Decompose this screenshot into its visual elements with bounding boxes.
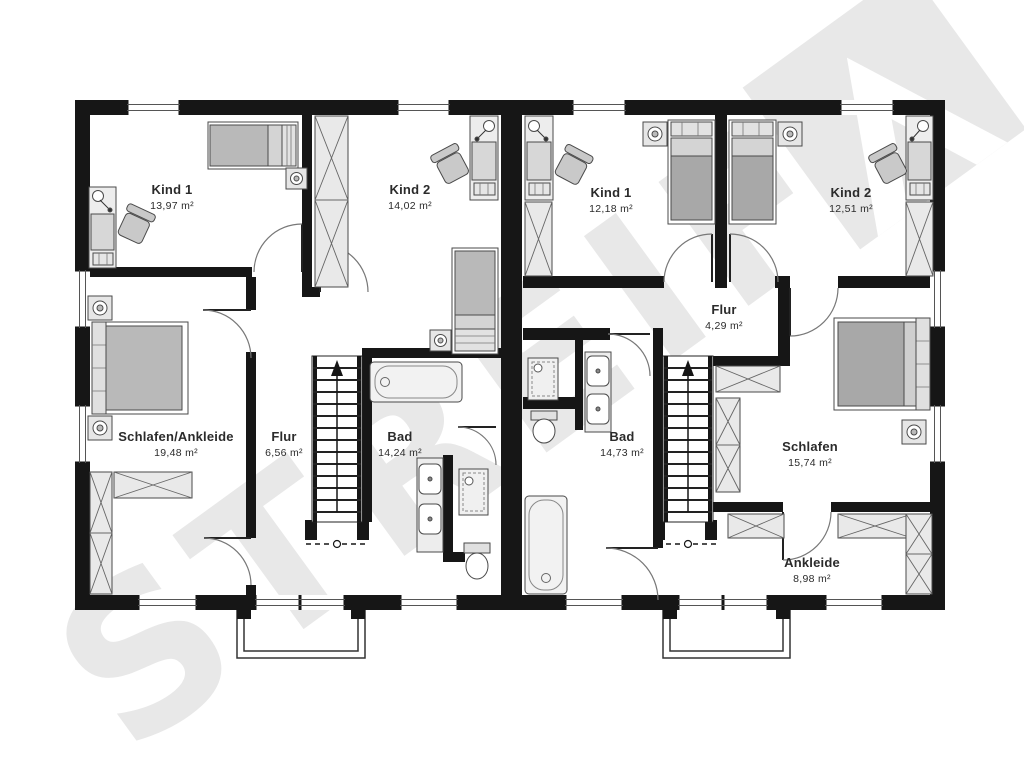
room-label-right-schlafen: Schlafen 15,74 m² (782, 439, 838, 469)
room-name: Kind 1 (589, 185, 633, 200)
room-name: Schlafen (782, 439, 838, 454)
room-area: 8,98 m² (784, 573, 840, 585)
room-name: Schlafen/Ankleide (118, 429, 233, 444)
floorplan-canvas: STREIF (0, 0, 1024, 768)
room-name: Kind 1 (150, 182, 194, 197)
room-area: 14,24 m² (378, 447, 422, 459)
room-area: 19,48 m² (118, 447, 233, 459)
room-label-right-bad: Bad 14,73 m² (600, 429, 644, 459)
room-name: Kind 2 (388, 182, 432, 197)
room-label-left-bad: Bad 14,24 m² (378, 429, 422, 459)
room-area: 13,97 m² (150, 200, 194, 212)
room-area: 14,73 m² (600, 447, 644, 459)
room-label-right-kind2: Kind 2 12,51 m² (829, 185, 873, 215)
room-area: 14,02 m² (388, 200, 432, 212)
room-area: 12,51 m² (829, 203, 873, 215)
room-name: Bad (378, 429, 422, 444)
room-labels: Kind 1 13,97 m² Kind 2 14,02 m² Schlafen… (0, 0, 1024, 768)
room-area: 12,18 m² (589, 203, 633, 215)
room-label-left-kind2: Kind 2 14,02 m² (388, 182, 432, 212)
room-label-right-kind1: Kind 1 12,18 m² (589, 185, 633, 215)
room-label-left-flur: Flur 6,56 m² (265, 429, 303, 459)
room-label-right-flur: Flur 4,29 m² (705, 302, 743, 332)
room-name: Bad (600, 429, 644, 444)
room-name: Flur (265, 429, 303, 444)
room-label-right-ankleide: Ankleide 8,98 m² (784, 555, 840, 585)
room-area: 4,29 m² (705, 320, 743, 332)
room-area: 6,56 m² (265, 447, 303, 459)
room-area: 15,74 m² (782, 457, 838, 469)
room-label-left-kind1: Kind 1 13,97 m² (150, 182, 194, 212)
room-name: Kind 2 (829, 185, 873, 200)
room-label-left-schlafen-ankleide: Schlafen/Ankleide 19,48 m² (118, 429, 233, 459)
room-name: Flur (705, 302, 743, 317)
room-name: Ankleide (784, 555, 840, 570)
